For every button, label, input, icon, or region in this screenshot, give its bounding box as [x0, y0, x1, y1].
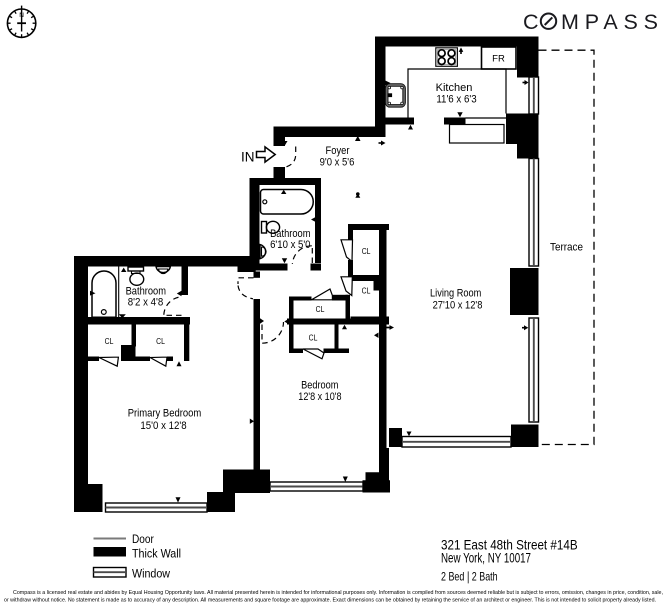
svg-text:CL: CL [316, 304, 325, 314]
svg-text:6'10 x 5'0: 6'10 x 5'0 [270, 239, 310, 251]
svg-text:Foyer: Foyer [326, 145, 350, 157]
svg-text:CL: CL [105, 336, 114, 346]
svg-text:CL: CL [362, 246, 371, 256]
svg-text:Living Room: Living Room [430, 287, 481, 299]
svg-text:Bathroom: Bathroom [126, 285, 167, 297]
svg-text:Compass is a licensed real est: Compass is a licensed real estate and ab… [13, 590, 663, 596]
svg-text:MPASS: MPASS [561, 10, 658, 34]
svg-text:8'2 x 4'8: 8'2 x 4'8 [128, 297, 164, 309]
svg-text:Door: Door [132, 532, 154, 546]
svg-text:CL: CL [309, 333, 318, 343]
svg-text:N: N [19, 12, 24, 19]
svg-text:New York, NY 10017: New York, NY 10017 [441, 550, 531, 565]
svg-text:C: C [523, 10, 539, 34]
svg-text:15'0 x 12'8: 15'0 x 12'8 [140, 420, 186, 432]
svg-text:or withdraw without notice. No: or withdraw without notice. No statement… [4, 598, 656, 604]
svg-text:9'0 x 5'6: 9'0 x 5'6 [320, 156, 355, 168]
svg-text:Bedroom: Bedroom [301, 380, 338, 392]
svg-text:Terrace: Terrace [550, 242, 583, 254]
svg-text:11'6 x 6'3: 11'6 x 6'3 [436, 94, 476, 106]
svg-text:12'8 x 10'8: 12'8 x 10'8 [298, 391, 341, 403]
svg-text:Thick Wall: Thick Wall [132, 546, 181, 560]
svg-text:Window: Window [132, 566, 170, 580]
svg-text:IN: IN [241, 150, 255, 165]
svg-text:CL: CL [362, 286, 371, 296]
svg-text:27'10 x 12'8: 27'10 x 12'8 [433, 299, 483, 311]
svg-text:2 Bed❘2 Bath: 2 Bed❘2 Bath [441, 569, 498, 583]
svg-text:CL: CL [156, 336, 165, 346]
svg-text:FR: FR [492, 54, 505, 65]
svg-text:Primary Bedroom: Primary Bedroom [128, 408, 202, 420]
svg-text:Kitchen: Kitchen [436, 82, 473, 94]
